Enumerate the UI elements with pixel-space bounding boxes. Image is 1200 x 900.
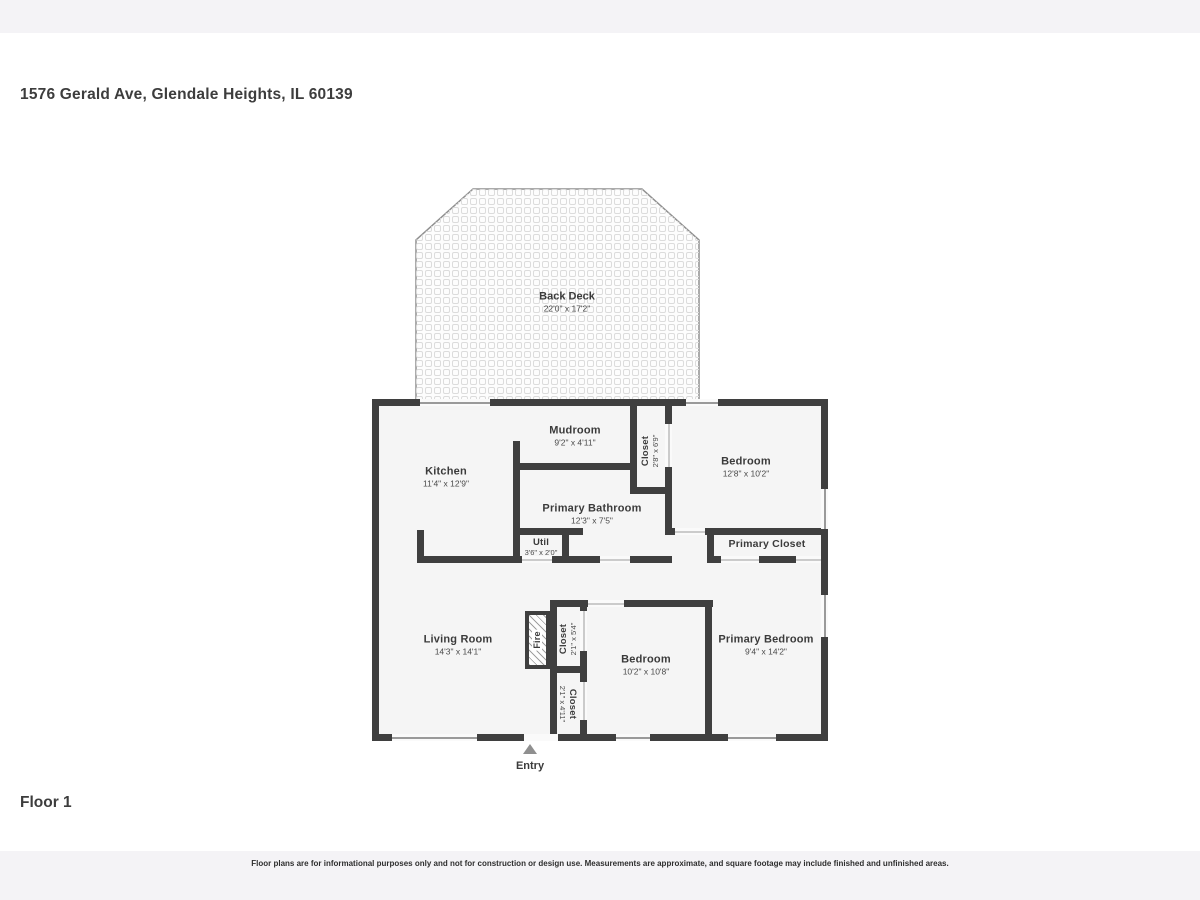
room-name: Closet — [567, 686, 578, 722]
door-opening — [580, 611, 587, 651]
room-dims: 12'8" x 10'2" — [721, 469, 771, 479]
wall-util-top — [513, 528, 583, 535]
room-label-util: Util 3'6" x 2'0" — [525, 537, 558, 557]
window-opening — [821, 489, 828, 529]
back-deck-area: Back Deck 22'0" x 17'2" — [415, 188, 700, 403]
room-name: Fire — [532, 629, 542, 650]
room-name: Util — [525, 537, 558, 548]
door-opening — [588, 600, 624, 607]
room-label-closet-mid: Closet 2'1" x 5'4" — [558, 623, 578, 656]
room-name: Kitchen — [423, 466, 469, 478]
room-label-mudroom: Mudroom 9'2" x 4'11" — [549, 425, 601, 448]
entry-arrow-icon — [523, 744, 537, 754]
content-area: 1576 Gerald Ave, Glendale Heights, IL 60… — [0, 33, 1200, 851]
room-dims: 11'4" x 12'9" — [423, 479, 469, 489]
floorplan: Kitchen 11'4" x 12'9" Mudroom 9'2" x 4'1… — [372, 399, 828, 741]
window-opening — [728, 734, 776, 741]
window-opening — [392, 734, 477, 741]
room-dims: 12'3" x 7'5" — [542, 516, 641, 526]
wall-exterior-left — [372, 399, 379, 741]
door-opening — [600, 556, 630, 563]
room-name: Back Deck — [539, 291, 595, 303]
room-name: Primary Closet — [729, 538, 806, 550]
room-dims: 3'6" x 2'0" — [525, 548, 558, 557]
door-opening — [796, 556, 821, 563]
floorplan-page: { "page": { "address": "1576 Gerald Ave,… — [0, 0, 1200, 900]
wall-closet-middle — [550, 666, 587, 673]
room-label-kitchen: Kitchen 11'4" x 12'9" — [423, 466, 469, 489]
wall-bedroommid-top — [550, 600, 713, 607]
door-opening — [522, 556, 552, 563]
room-label-primary-bathroom: Primary Bathroom 12'3" x 7'5" — [542, 503, 641, 526]
wall-mudroom-right — [630, 399, 637, 494]
room-label-primary-closet: Primary Closet — [729, 538, 806, 550]
room-label-mud-closet: Closet 2'8" x 6'9" — [640, 435, 660, 468]
room-label-living-room: Living Room 14'3" x 14'1" — [424, 634, 493, 657]
room-name: Living Room — [424, 634, 493, 646]
wall-primarybedroom-left — [705, 607, 712, 734]
wall-util-right — [562, 535, 569, 563]
room-dims: 2'1" x 5'4" — [569, 623, 578, 656]
room-dims: 14'3" x 14'1" — [424, 647, 493, 657]
room-label-bedroom-top: Bedroom 12'8" x 10'2" — [721, 456, 771, 479]
room-label-closet-bottom: Closet 2'1" x 4'11" — [558, 686, 578, 722]
door-opening — [665, 424, 672, 467]
window-opening — [420, 399, 490, 406]
room-label-back-deck: Back Deck 22'0" x 17'2" — [539, 291, 595, 314]
room-label-bedroom-mid: Bedroom 10'2" x 10'8" — [621, 654, 671, 677]
room-label-fire: Fire — [532, 629, 542, 650]
page-title: 1576 Gerald Ave, Glendale Heights, IL 60… — [20, 86, 353, 104]
room-name: Mudroom — [549, 425, 601, 437]
door-opening — [580, 682, 587, 720]
room-dims: 9'2" x 4'11" — [549, 438, 601, 448]
wall-exterior-right — [821, 399, 828, 741]
wall-kitchen-divider — [513, 441, 520, 563]
entry-label: Entry — [516, 760, 544, 772]
wall-kitchen-stub — [417, 530, 424, 563]
room-dims: 22'0" x 17'2" — [539, 304, 595, 314]
room-label-primary-bedroom: Primary Bedroom 9'4" x 14'2" — [718, 634, 813, 657]
room-dims: 2'8" x 6'9" — [651, 435, 660, 468]
window-opening — [821, 595, 828, 637]
window-opening — [686, 399, 718, 406]
door-opening — [675, 528, 705, 535]
room-name: Primary Bathroom — [542, 503, 641, 515]
room-dims: 2'1" x 4'11" — [558, 686, 567, 722]
room-dims: 9'4" x 14'2" — [718, 647, 813, 657]
room-dims: 10'2" x 10'8" — [621, 667, 671, 677]
room-name: Primary Bedroom — [718, 634, 813, 646]
room-name: Closet — [640, 435, 651, 468]
disclaimer-text: Floor plans are for informational purpos… — [0, 859, 1200, 868]
wall-mudroom-bottom — [513, 463, 637, 470]
room-name: Bedroom — [621, 654, 671, 666]
entry-door-opening — [524, 734, 558, 741]
window-opening — [616, 734, 650, 741]
floor-label: Floor 1 — [20, 794, 72, 812]
door-opening — [721, 556, 759, 563]
room-name: Closet — [558, 623, 569, 656]
wall-bedroomtop-left — [665, 399, 672, 535]
room-name: Bedroom — [721, 456, 771, 468]
